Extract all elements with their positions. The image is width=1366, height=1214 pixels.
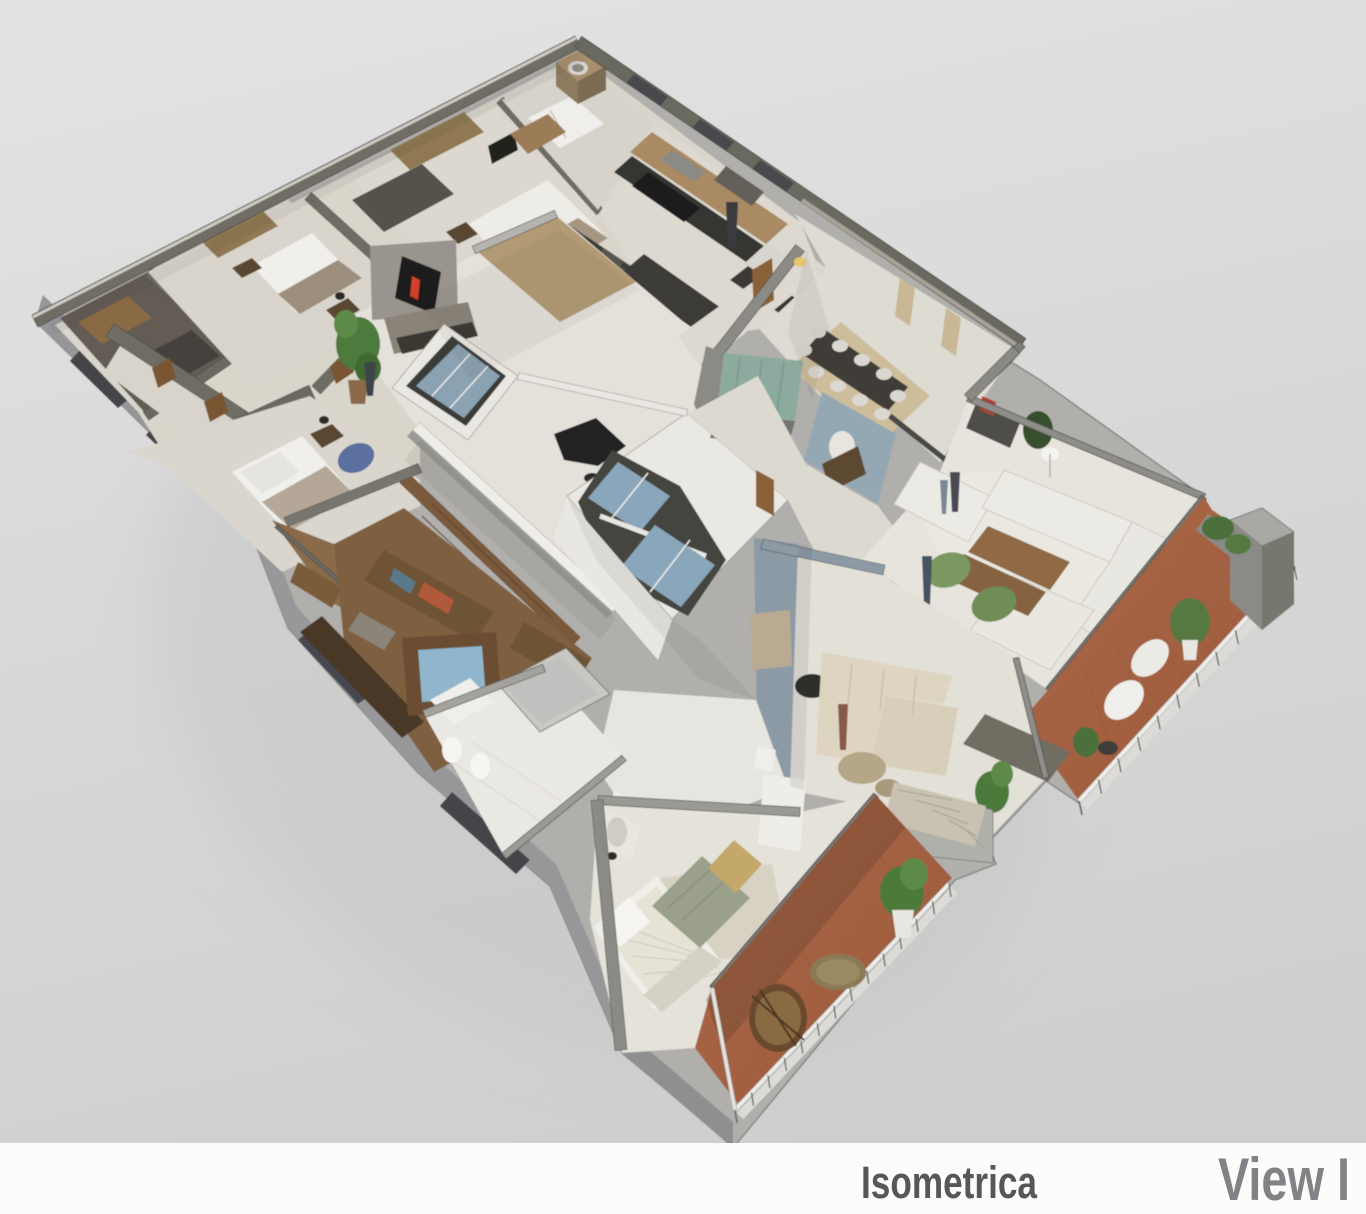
svg-text:Isometrica: Isometrica bbox=[861, 1157, 1038, 1208]
svg-text:View I: View I bbox=[1218, 1146, 1350, 1213]
